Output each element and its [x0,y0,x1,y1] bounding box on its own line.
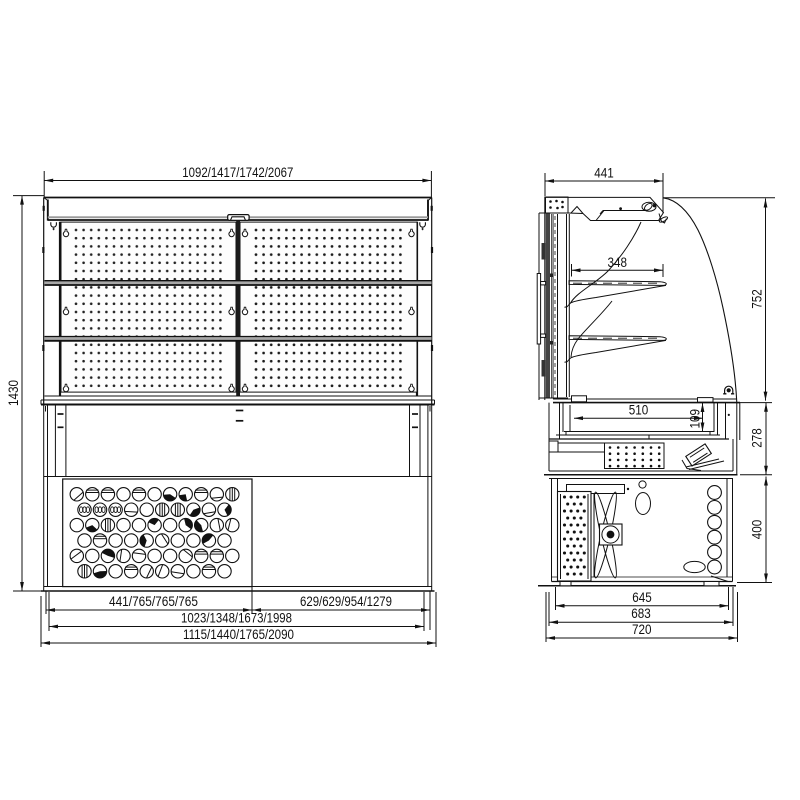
svg-text:400: 400 [750,520,765,540]
svg-text:720: 720 [632,622,652,637]
svg-text:683: 683 [631,606,651,621]
svg-text:752: 752 [750,289,765,309]
svg-text:629/629/954/1279: 629/629/954/1279 [300,594,392,609]
svg-text:510: 510 [629,403,649,418]
svg-text:278: 278 [750,428,765,448]
svg-text:441/765/765/765: 441/765/765/765 [109,594,198,609]
svg-text:1430: 1430 [6,380,21,406]
svg-text:441: 441 [594,166,614,181]
svg-text:1023/1348/1673/1998: 1023/1348/1673/1998 [181,611,292,626]
svg-text:109: 109 [687,409,702,429]
svg-text:348: 348 [608,255,628,270]
svg-text:1092/1417/1742/2067: 1092/1417/1742/2067 [182,165,293,180]
svg-text:645: 645 [632,590,652,605]
svg-text:1115/1440/1765/2090: 1115/1440/1765/2090 [183,627,294,642]
